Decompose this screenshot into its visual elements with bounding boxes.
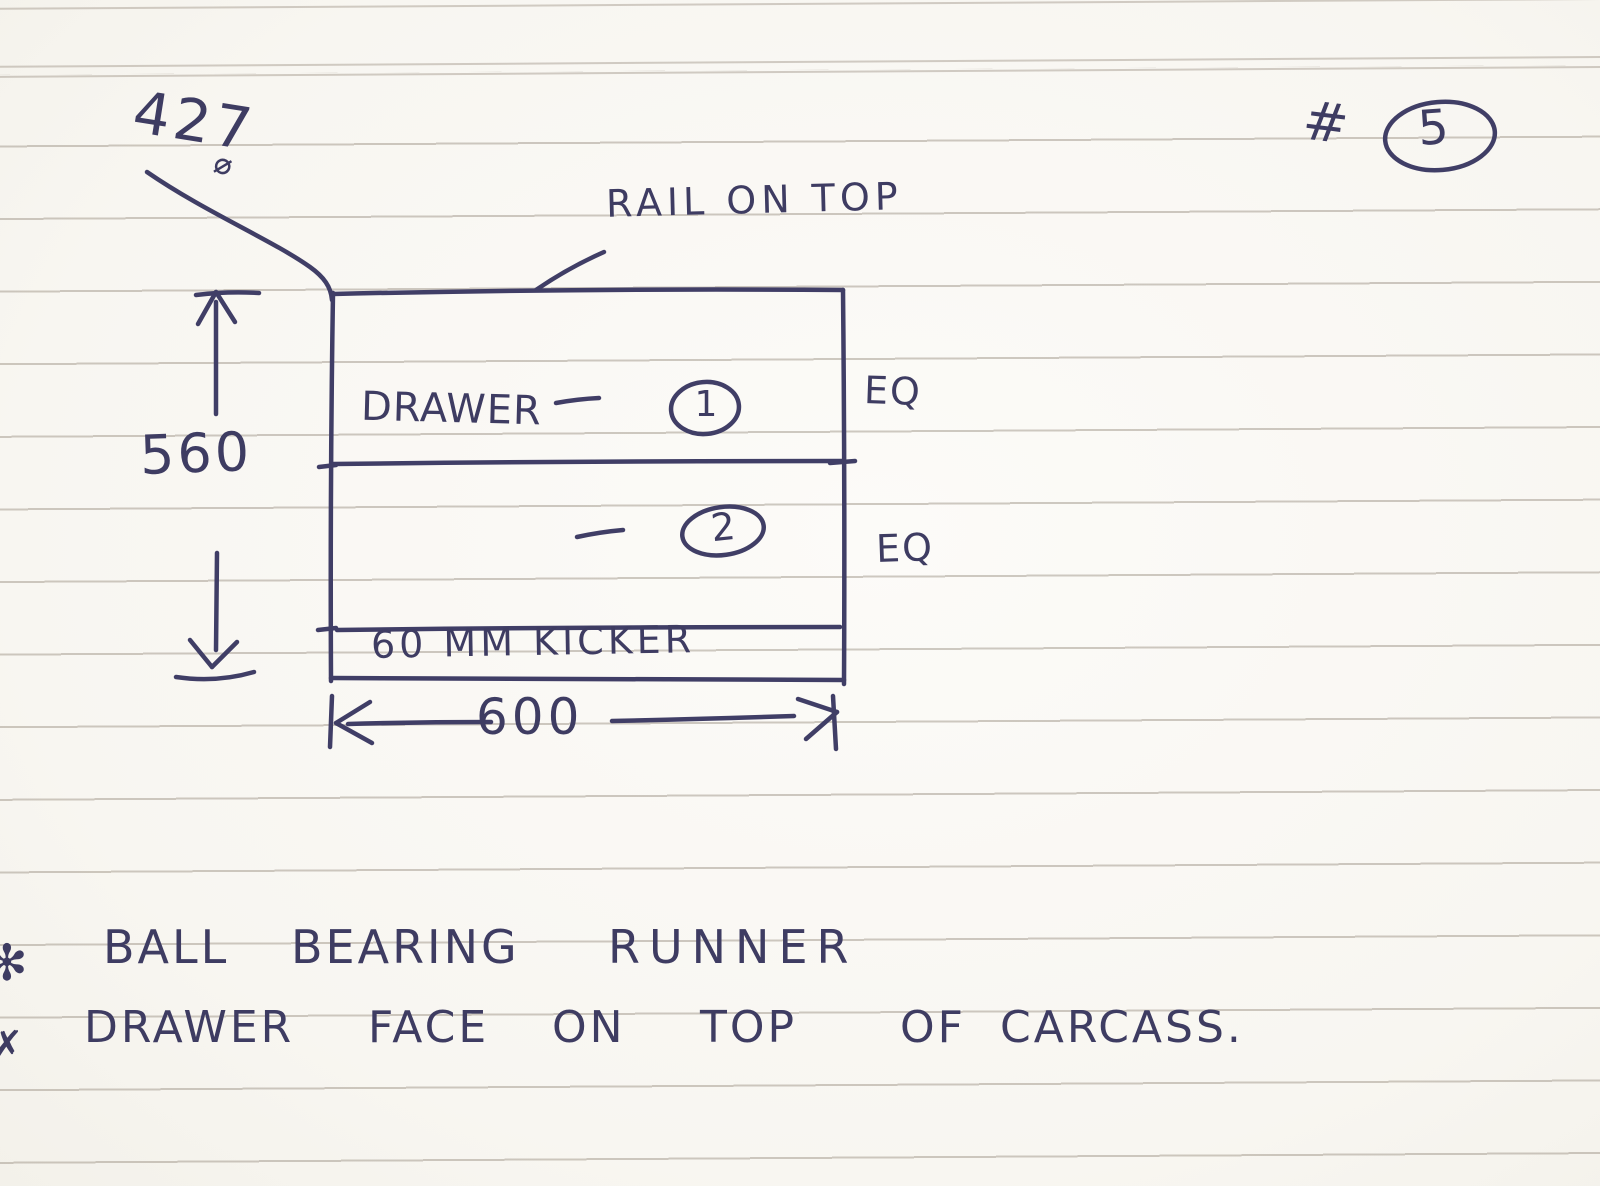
dim-560-bottom-arrowhead (190, 640, 212, 667)
dim-560-top-tick (196, 292, 259, 295)
dim-427-leader-curve (147, 172, 332, 300)
note-1-bullet: ✻ (0, 938, 28, 988)
dim-600-left-shaft (348, 722, 491, 724)
dim-560-label: 560 (139, 425, 253, 483)
box-bottom-edge (331, 678, 844, 680)
drawer-1-dash (556, 398, 599, 403)
right-tick-divider (830, 461, 855, 463)
note-2-word: OF (900, 1006, 966, 1050)
dim-560-top-arrowhead (216, 292, 235, 322)
height-dimension-560 (176, 292, 259, 679)
box-top-edge (333, 290, 843, 295)
rail-leader-line (536, 252, 604, 290)
dim-600-right-shaft (612, 716, 794, 721)
width-dimension-600 (330, 696, 837, 749)
rail-leader (536, 252, 604, 290)
kicker-label: 60 MM KICKER (371, 620, 696, 664)
note-2-bullet: ✗ (0, 1026, 24, 1066)
note-2-word: TOP (700, 1006, 797, 1050)
dim-560-bottom-tick (176, 672, 254, 679)
note-2-word: DRAWER (84, 1006, 294, 1050)
left-tick-kicker (318, 628, 336, 630)
dim-600-left-arrowhead (336, 702, 370, 723)
drawer-2-dash (577, 530, 623, 537)
page-ref-hash: # (1300, 93, 1351, 152)
dim-600-right-tick (833, 696, 836, 749)
box-right-edge (843, 290, 844, 684)
drawer-divider-line (333, 461, 843, 464)
eq-label-top: EQ (863, 371, 922, 411)
note-1-word: RUNNER (608, 924, 857, 970)
note-1-word: BEARING (291, 924, 520, 970)
box-left-edge (331, 293, 333, 681)
note-2-word: CARCASS. (1000, 1006, 1244, 1050)
drawer-label: DRAWER (361, 387, 543, 432)
note-1-word: BALL (103, 924, 229, 970)
drawer-1-number: 1 (688, 387, 724, 423)
dim-560-lower-shaft (216, 553, 217, 650)
notebook-page: 427 ⌀ # 5 RAIL ON TOP DRAWER 1 2 EQ EQ 6… (0, 0, 1600, 1186)
note-2-word: FACE (368, 1006, 489, 1050)
note-2-word: ON (552, 1006, 626, 1050)
dim-560-top-arrowhead (198, 292, 216, 324)
drawer-markers (556, 97, 1498, 560)
page-ref-number: 5 (1416, 103, 1450, 153)
dim-600-label: 600 (476, 692, 583, 742)
dim-600-left-tick (330, 696, 332, 747)
rail-on-top-label: RAIL ON TOP (606, 177, 904, 223)
drawer-2-number: 2 (700, 506, 746, 548)
dim-427-label: 427 (129, 83, 259, 159)
left-tick-divider (319, 465, 336, 467)
top-pointer-curve (147, 172, 332, 300)
eq-label-bottom: EQ (875, 528, 934, 568)
